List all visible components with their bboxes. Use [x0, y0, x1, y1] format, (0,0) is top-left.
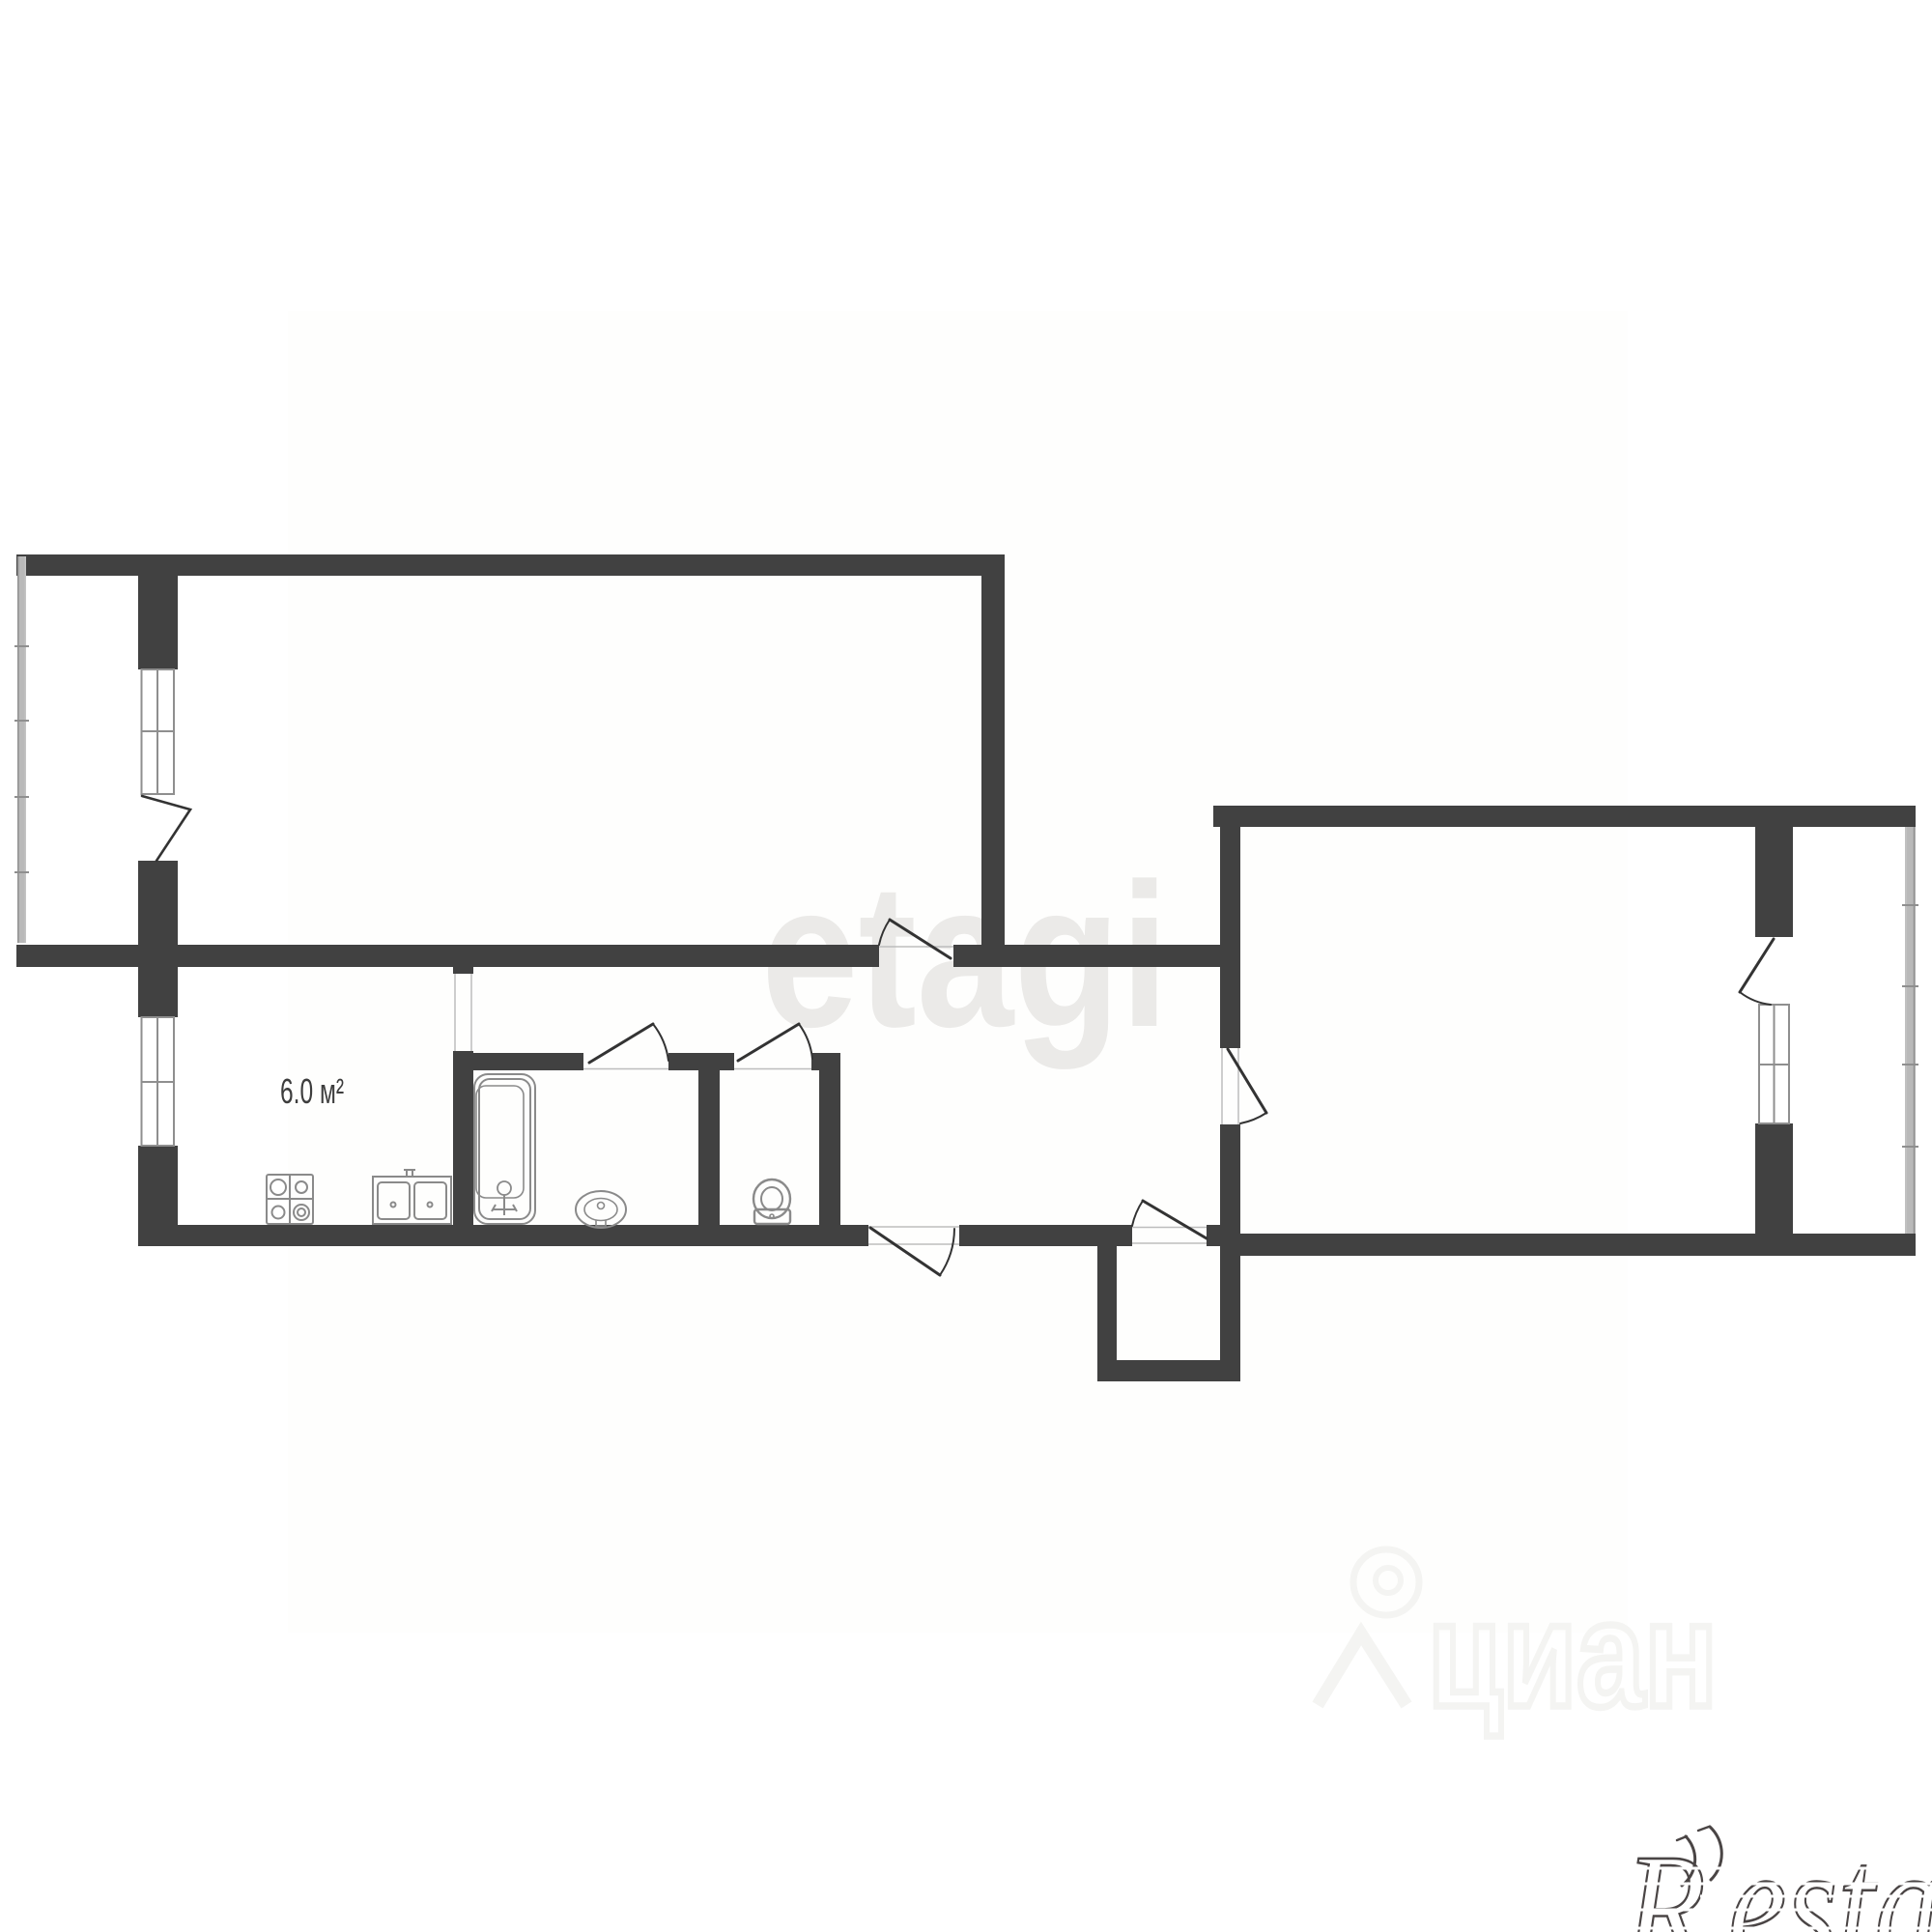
- svg-text:6.0 м²: 6.0 м²: [280, 1071, 344, 1111]
- svg-text:estate: estate: [1728, 1810, 1932, 1932]
- svg-text:циан: циан: [1428, 1571, 1718, 1739]
- svg-text:R: R: [1624, 1823, 1706, 1932]
